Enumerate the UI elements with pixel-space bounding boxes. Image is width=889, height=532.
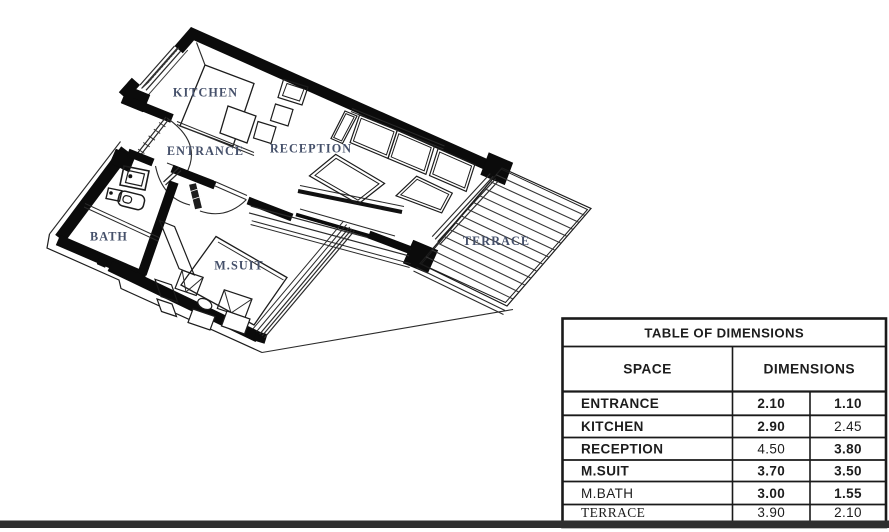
- svg-text:3.80: 3.80: [834, 442, 862, 457]
- svg-text:2.90: 2.90: [757, 419, 785, 434]
- svg-text:ENTRANCE: ENTRANCE: [167, 144, 244, 158]
- svg-text:DIMENSIONS: DIMENSIONS: [764, 362, 855, 377]
- svg-text:TABLE OF DIMENSIONS: TABLE OF DIMENSIONS: [644, 326, 804, 341]
- svg-text:TERRACE: TERRACE: [463, 234, 530, 248]
- svg-text:2.10: 2.10: [834, 505, 862, 520]
- svg-text:2.45: 2.45: [834, 419, 862, 434]
- svg-text:3.70: 3.70: [757, 464, 785, 479]
- svg-text:3.90: 3.90: [757, 505, 785, 520]
- svg-text:3.50: 3.50: [834, 464, 862, 479]
- svg-text:RECEPTION: RECEPTION: [270, 142, 352, 156]
- svg-text:4.50: 4.50: [757, 442, 785, 457]
- svg-text:KITCHEN: KITCHEN: [173, 86, 238, 100]
- svg-text:M.SUIT: M.SUIT: [214, 259, 264, 273]
- svg-text:KITCHEN: KITCHEN: [581, 419, 644, 434]
- svg-text:M.SUIT: M.SUIT: [581, 464, 630, 479]
- svg-text:1.55: 1.55: [834, 486, 862, 501]
- svg-text:TERRACE: TERRACE: [581, 505, 645, 520]
- svg-text:ENTRANCE: ENTRANCE: [581, 396, 659, 411]
- svg-text:1.10: 1.10: [834, 396, 862, 411]
- svg-text:2.10: 2.10: [757, 396, 785, 411]
- svg-text:SPACE: SPACE: [623, 362, 672, 377]
- svg-text:RECEPTION: RECEPTION: [581, 442, 663, 457]
- svg-text:BATH: BATH: [90, 230, 128, 244]
- svg-text:M.BATH: M.BATH: [581, 486, 633, 501]
- svg-text:3.00: 3.00: [757, 486, 785, 501]
